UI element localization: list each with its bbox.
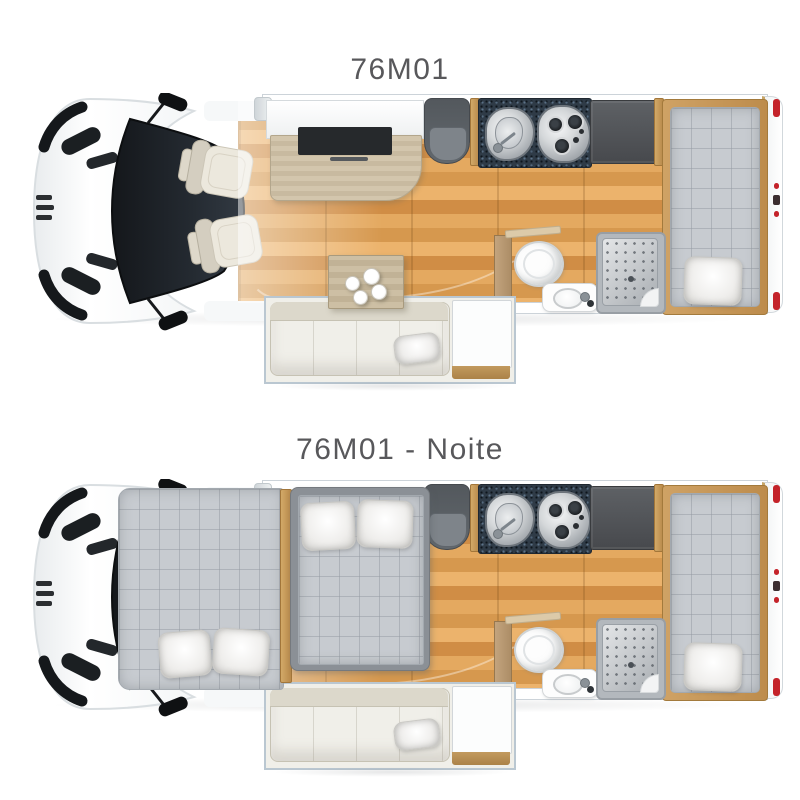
kitchen-counter <box>478 98 592 168</box>
hob-knob-1 <box>573 137 579 143</box>
rear-marker-1 <box>774 569 779 575</box>
toilet-seat <box>523 249 555 279</box>
slide-out-shadow <box>272 381 512 391</box>
hob <box>537 491 591 549</box>
cab-graphic <box>26 93 272 331</box>
kitchen-sink <box>485 107 535 161</box>
rear-marker-2 <box>774 211 779 217</box>
slide-out <box>264 296 516 384</box>
rear-marker-dark <box>773 581 780 591</box>
hob-knob-1 <box>573 523 579 529</box>
over-cab-pillow-left <box>157 629 213 679</box>
sofa-pillow <box>392 717 441 751</box>
cup-2 <box>363 268 380 285</box>
burner-3 <box>553 523 571 541</box>
hob-knob-2 <box>579 515 584 520</box>
slide-out-shadow <box>272 767 512 777</box>
burner-1 <box>547 502 564 519</box>
day-plan-title: 76M01 <box>0 53 800 87</box>
toilet <box>514 627 564 673</box>
tail-light-top <box>773 485 780 503</box>
over-cab-pillow-right <box>211 627 270 677</box>
windshield <box>112 119 244 303</box>
hob-knob-2 <box>579 129 584 134</box>
tail-light-bottom <box>773 292 780 310</box>
shower-drain <box>628 276 634 282</box>
shower-cubicle <box>596 232 666 314</box>
night-plan-title: 76M01 - Noite <box>0 433 800 467</box>
kitchen-sink <box>485 493 535 547</box>
kitchen-counter <box>478 484 592 554</box>
washbasin-unit <box>542 283 598 312</box>
hob <box>537 105 591 163</box>
side-cabinet <box>452 686 512 754</box>
tail-light-bottom <box>773 678 780 696</box>
page: 76M01 <box>0 0 800 800</box>
sofa-pillow <box>392 331 441 365</box>
tv-stand <box>330 157 368 161</box>
washbasin-handle <box>587 300 594 307</box>
rear-marker-2 <box>774 597 779 603</box>
main-bed-pillow-right <box>356 499 414 549</box>
rear-bed-pillow <box>683 256 743 306</box>
burner-3 <box>553 137 571 155</box>
rear-marker-dark <box>773 195 780 205</box>
refrigerator <box>590 486 658 550</box>
rear-marker-1 <box>774 183 779 189</box>
seat-cushion <box>429 513 467 547</box>
slide-out <box>264 682 516 770</box>
side-cabinet-base <box>452 366 510 379</box>
rear-bed-pillow <box>683 642 743 692</box>
washbasin <box>553 674 583 695</box>
main-double-bed <box>290 487 430 671</box>
shower-cubicle <box>596 618 666 700</box>
refrigerator <box>590 100 658 164</box>
toilet <box>514 241 564 287</box>
cup-3 <box>353 290 368 305</box>
dinette-table <box>328 255 404 309</box>
toilet-seat <box>523 635 555 665</box>
tv-screen <box>298 127 392 155</box>
cup-1 <box>345 276 360 291</box>
side-cabinet-base <box>452 752 510 765</box>
main-bed-pillow-left <box>300 501 356 552</box>
front-facing-seat <box>424 98 470 164</box>
floorplan-night <box>0 471 800 783</box>
grille <box>36 195 54 220</box>
shower-drain <box>628 662 634 668</box>
sofa-backrest <box>270 688 448 707</box>
front-facing-seat <box>424 484 470 550</box>
floorplan-day <box>0 85 800 397</box>
washbasin-unit <box>542 669 598 698</box>
over-cab-double-bed <box>118 488 284 690</box>
washbasin-handle <box>587 686 594 693</box>
washbasin <box>553 288 583 309</box>
side-cabinet <box>452 300 512 368</box>
cup-4 <box>371 284 387 300</box>
seat-cushion <box>429 127 467 161</box>
burner-1 <box>547 116 564 133</box>
tail-light-top <box>773 99 780 117</box>
grille <box>36 581 54 606</box>
